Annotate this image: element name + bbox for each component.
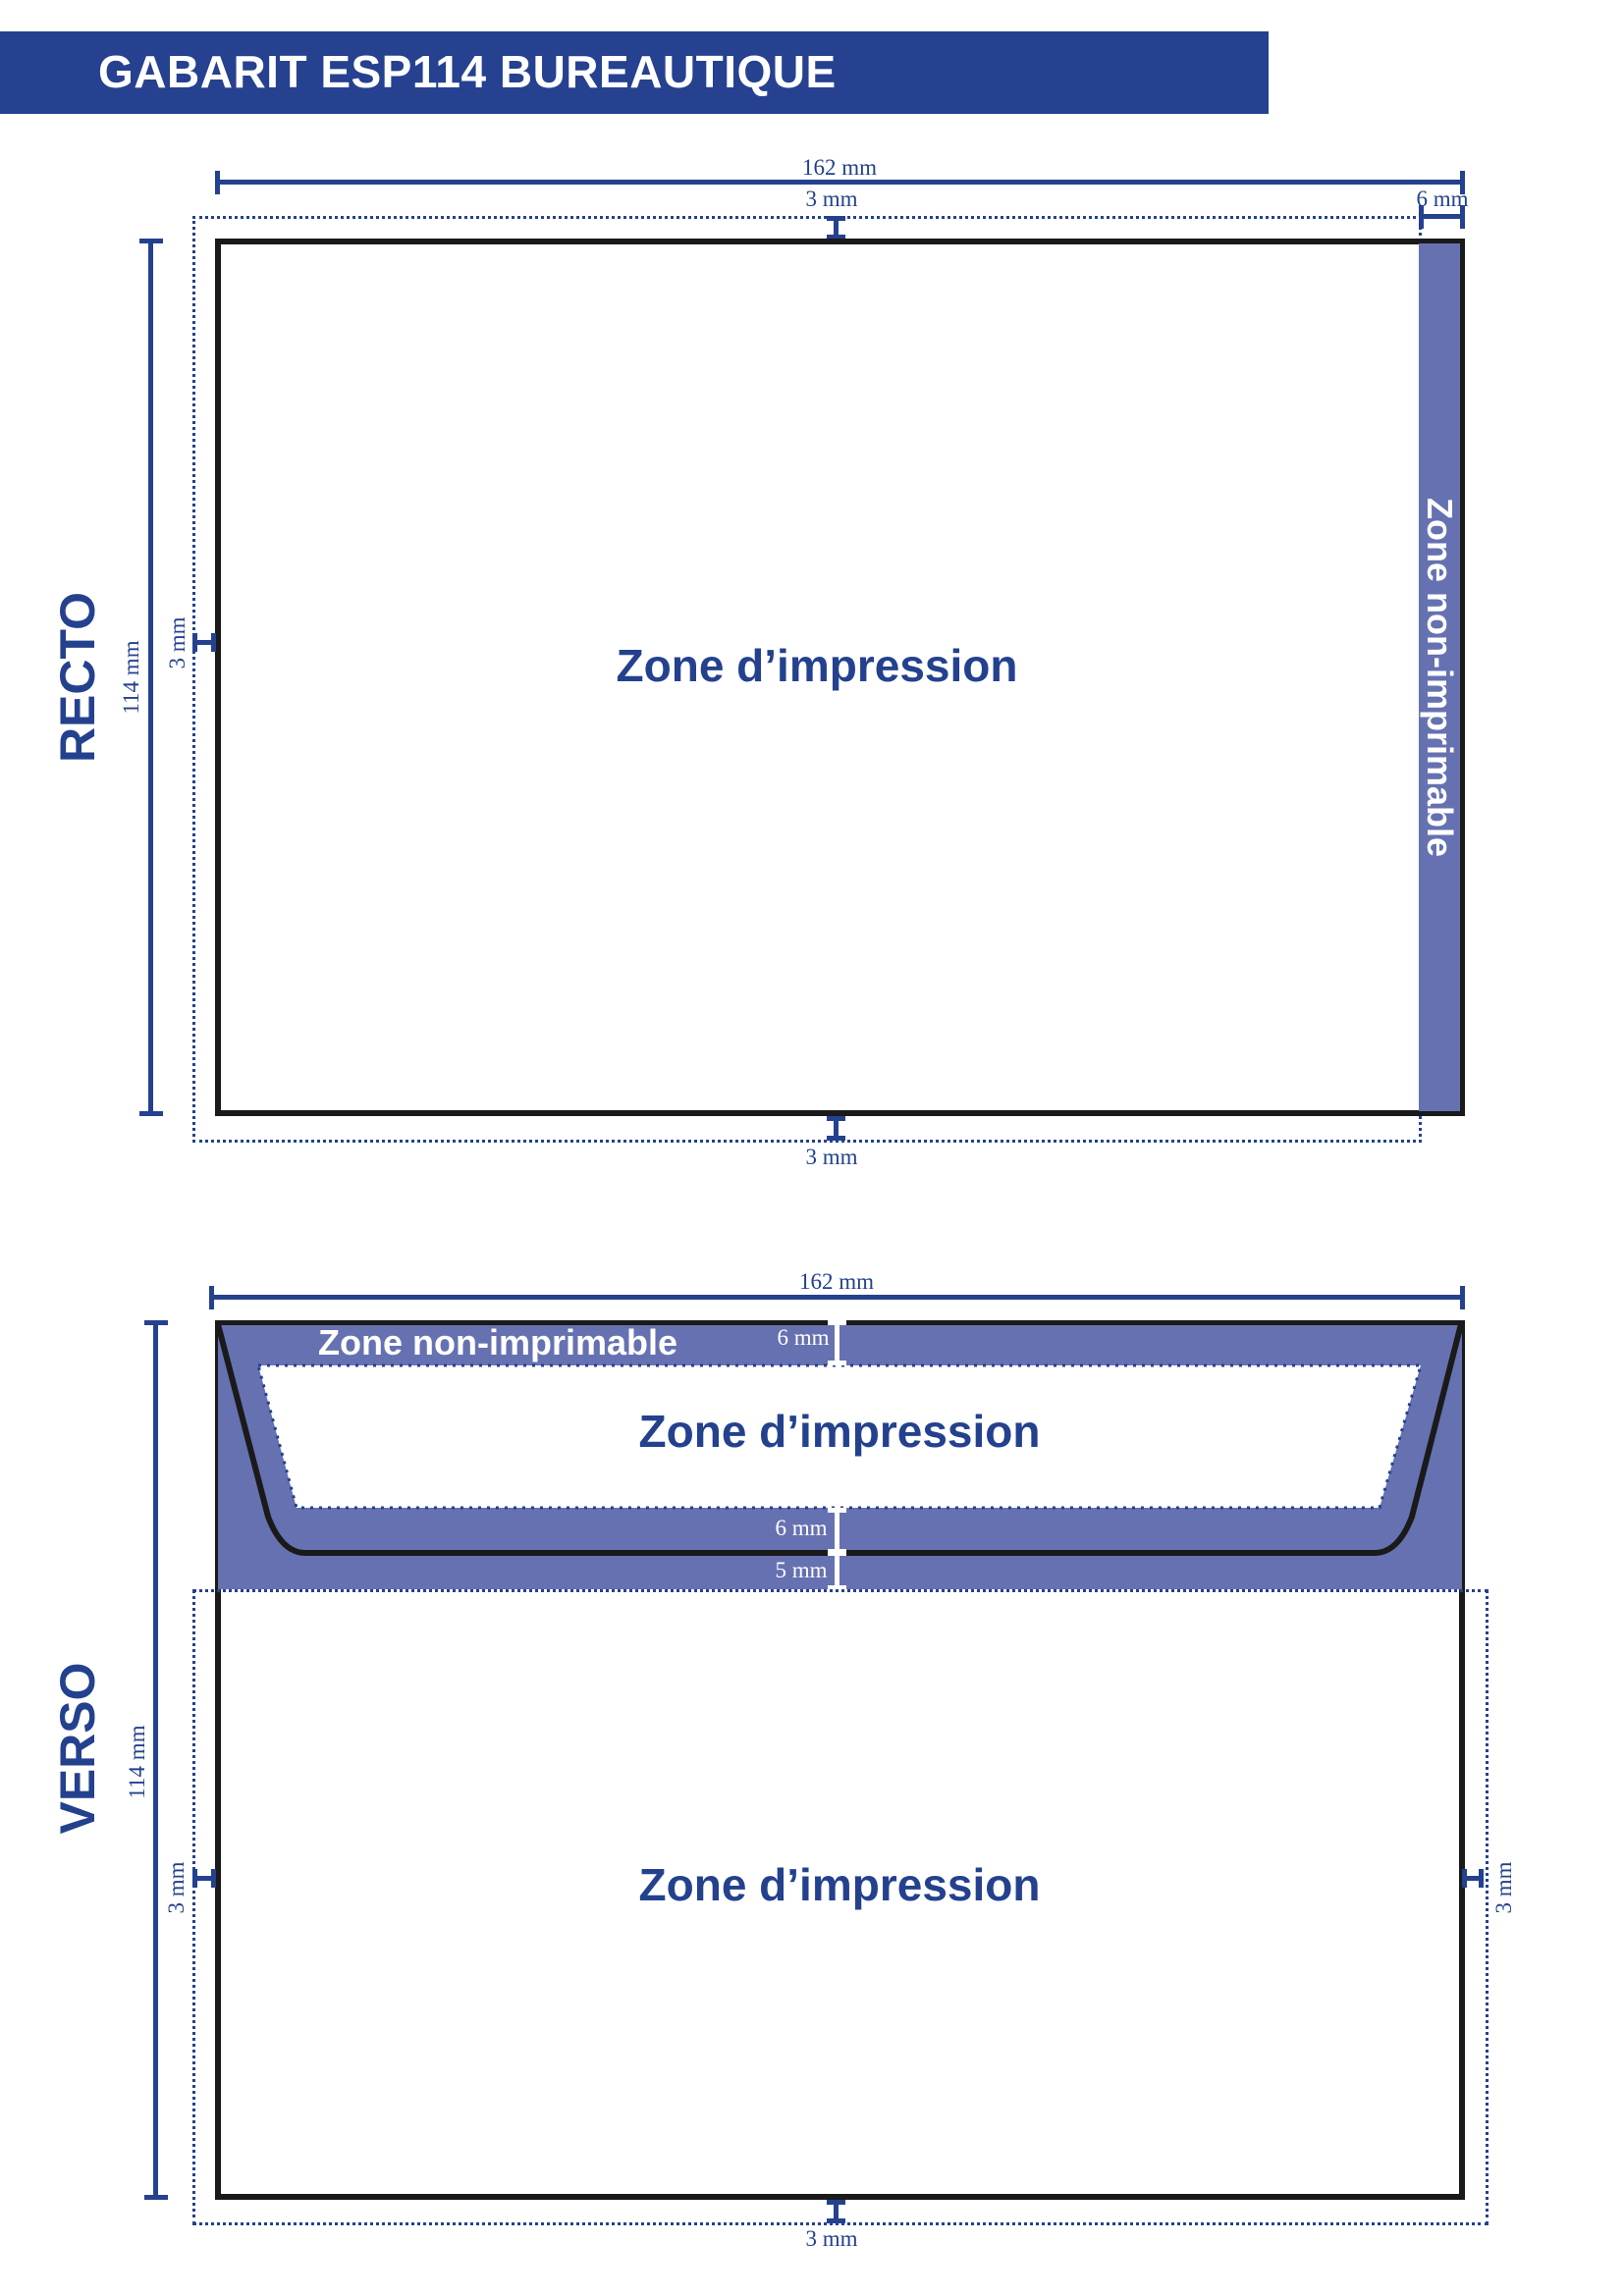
recto-side-label: RECTO (49, 592, 106, 763)
verso-height-dim-label: 114 mm (125, 1725, 150, 1798)
verso-body-top-margin-label: 5 mm (775, 1558, 827, 1583)
verso-side-label: VERSO (49, 1662, 106, 1834)
recto-left-margin-ibeam (192, 640, 216, 645)
verso-left-margin-ibeam (192, 1876, 216, 1881)
recto-bottom-margin-ibeam (834, 1116, 839, 1141)
verso-flap-bottom-margin-label: 6 mm (775, 1516, 827, 1541)
verso-flap-nonprint-label: Zone non-imprimable (318, 1322, 677, 1363)
recto-width-dim-line (215, 180, 1465, 185)
verso-bottom-margin-ibeam (834, 2200, 839, 2223)
recto-height-dim-line (148, 239, 153, 1116)
title-banner: GABARIT ESP114 BUREAUTIQUE (0, 31, 1269, 114)
verso-right-margin-label: 3 mm (1491, 1861, 1517, 1913)
verso-flap-top-margin-label: 6 mm (777, 1325, 829, 1351)
page-title: GABARIT ESP114 BUREAUTIQUE (98, 45, 837, 98)
verso-flap-top-margin-ibeam (835, 1320, 839, 1365)
recto-top-margin-label: 3 mm (805, 187, 857, 212)
recto-width-dim-label: 162 mm (802, 155, 877, 181)
recto-nonprint-width-dim-line (1419, 214, 1465, 219)
recto-nonprint-strip-label: Zone non-imprimable (1419, 498, 1460, 857)
verso-flap-bottom-margin-ibeam (835, 1508, 839, 1554)
verso-height-dim-line (153, 1320, 158, 2200)
verso-left-margin-label: 3 mm (164, 1861, 189, 1913)
verso-right-margin-ibeam (1462, 1876, 1484, 1881)
recto-bottom-margin-label: 3 mm (805, 1145, 857, 1170)
verso-body-print-zone-label: Zone d’impression (639, 1858, 1041, 1911)
verso-body-top-margin-ibeam (835, 1551, 839, 1590)
recto-left-margin-label: 3 mm (165, 616, 190, 668)
verso-width-dim-line (209, 1295, 1465, 1300)
recto-height-dim-label: 114 mm (119, 640, 144, 714)
verso-width-dim-label: 162 mm (799, 1269, 874, 1295)
verso-bottom-margin-label: 3 mm (805, 2226, 857, 2252)
verso-flap-print-zone-label: Zone d’impression (639, 1405, 1041, 1458)
recto-print-zone-label: Zone d’impression (617, 639, 1018, 692)
template-sheet: GABARIT ESP114 BUREAUTIQUE RECTO 162 mm … (0, 0, 1624, 2296)
